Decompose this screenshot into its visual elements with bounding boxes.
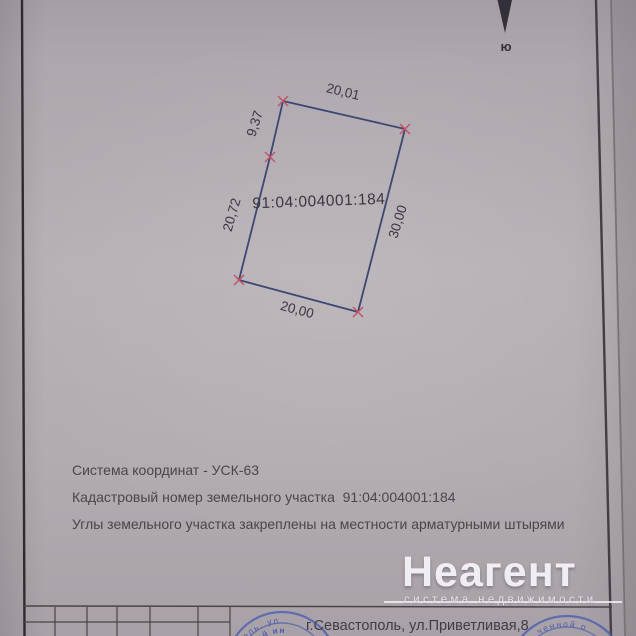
note-corner-marks: Углы земельного участка закреплены на ме…: [72, 517, 565, 532]
title-block-address: г.Севастополь, ул.Приветливая,8: [306, 618, 529, 634]
note-cadastral-number: Кадастровый номер земельного участка 91:…: [72, 490, 565, 505]
notes-block: Система координат - УСК-63 Кадастровый н…: [72, 463, 565, 544]
title-block-top-line: [23, 606, 612, 607]
parcel-outline: 20,01 9,37 20,72 30,00 20,00 91:04:00400…: [220, 80, 410, 321]
parcel-cadastral-number: 91:04:004001:184: [252, 191, 385, 213]
frame-right-line: [596, 0, 611, 636]
dimension-left: 20,72: [220, 196, 244, 233]
dimension-right: 30,00: [386, 203, 410, 240]
right-edge-shadow: [611, 0, 636, 636]
note-coordinate-system: Система координат - УСК-63: [72, 463, 565, 478]
south-label: ю: [500, 39, 511, 54]
dimension-top: 20,01: [325, 80, 361, 102]
arrow-needle: [498, 0, 513, 33]
dimension-upper-left: 9,37: [244, 109, 266, 139]
dimension-bottom: 20,00: [279, 298, 316, 321]
north-arrow: ю: [498, 0, 513, 54]
frame-left-line: [22, 0, 25, 636]
scanned-document-photo: ю 20,01: [0, 0, 636, 636]
